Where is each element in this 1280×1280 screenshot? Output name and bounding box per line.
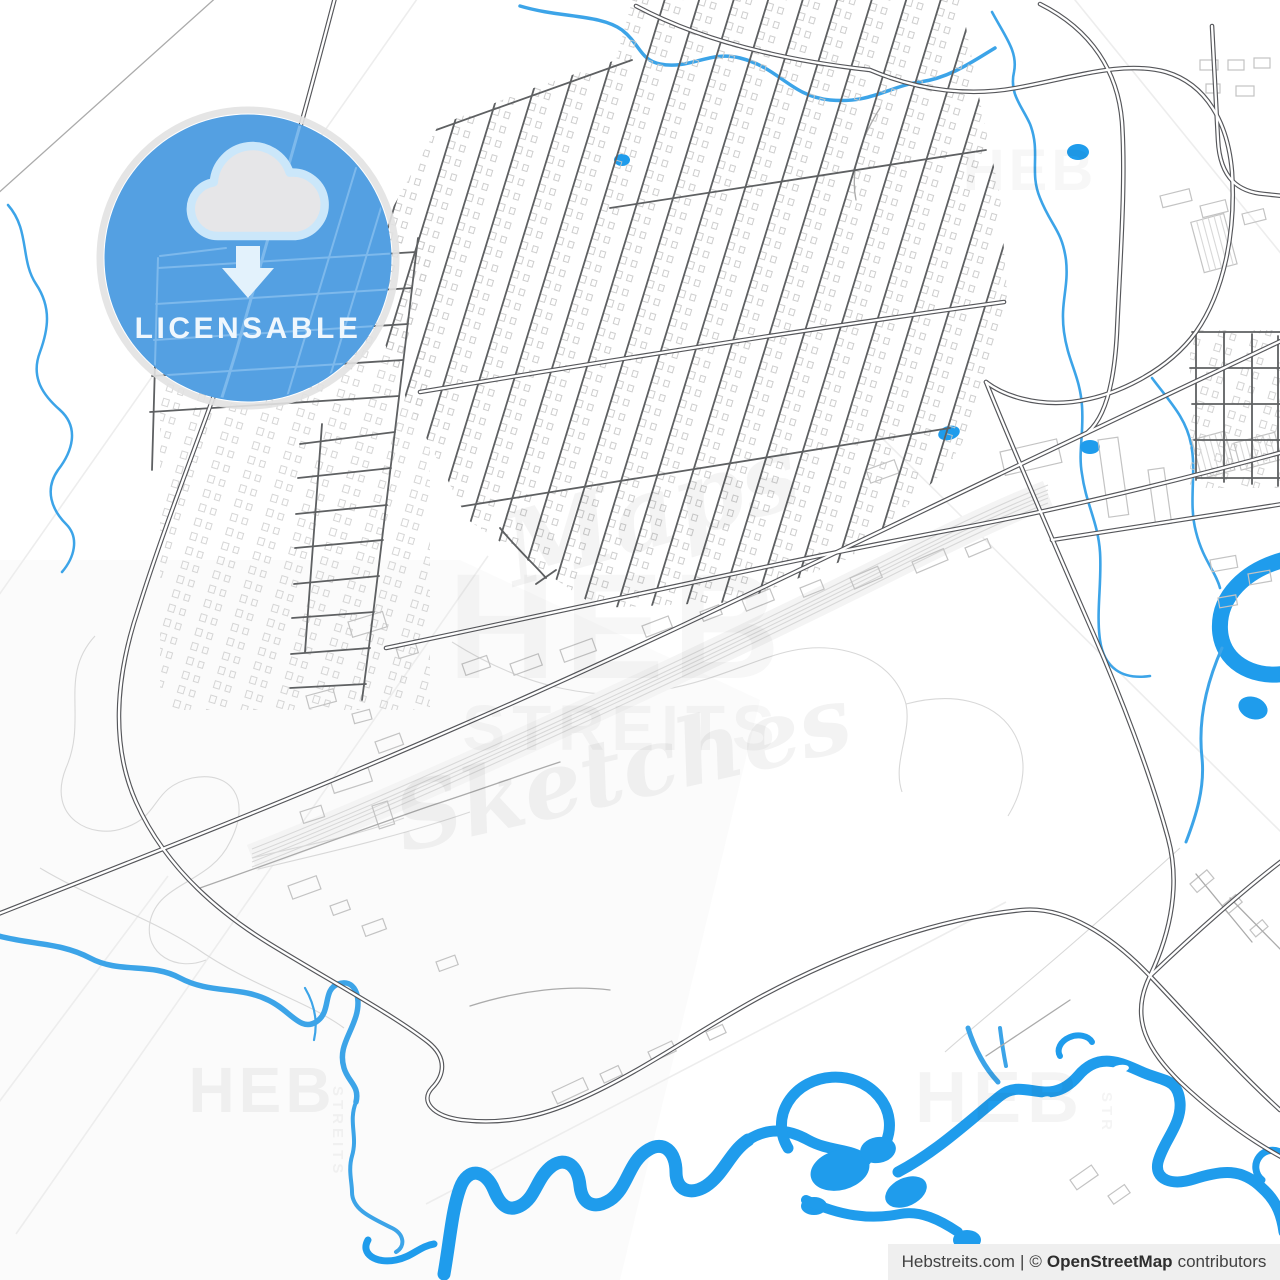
attribution-separator: | [1020, 1252, 1024, 1272]
watermark-heb-top-right: HEB [963, 138, 1097, 203]
map-image: Maps HEB STREITS Sketches HEB STREITS HE… [0, 0, 1280, 1280]
watermark-heb-bottom-right: HEB [915, 1058, 1085, 1138]
watermark-str-vertical: STR [1098, 1092, 1115, 1134]
watermark-heb: HEB [448, 542, 789, 710]
attribution-source: OpenStreetMap [1047, 1252, 1173, 1272]
attribution-bar: Hebstreits.com | © OpenStreetMap contrib… [888, 1244, 1280, 1280]
watermark-heb-bottom-left: HEB [188, 1054, 335, 1126]
attribution-site: Hebstreits.com [902, 1252, 1015, 1272]
licensable-label: LICENSABLE [135, 312, 362, 345]
attribution-suffix: contributors [1178, 1252, 1267, 1272]
map-canvas: Maps HEB STREITS Sketches HEB STREITS HE… [0, 0, 1280, 1280]
attribution-copyright: © [1029, 1252, 1042, 1272]
watermark-streits-vertical: STREITS [329, 1086, 346, 1177]
